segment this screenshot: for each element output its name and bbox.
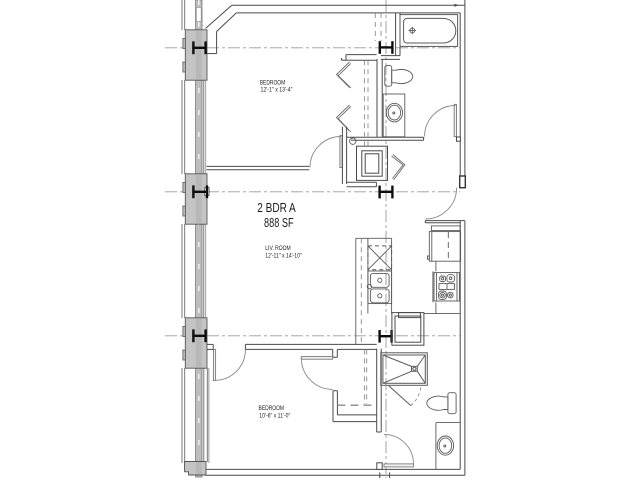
svg-text:12'-11" x 14'-10": 12'-11" x 14'-10"	[265, 252, 302, 259]
svg-text:2 BDR A: 2 BDR A	[257, 201, 296, 215]
svg-text:BEDROOM: BEDROOM	[260, 79, 286, 86]
svg-text:LIV. ROOM: LIV. ROOM	[265, 245, 291, 252]
svg-text:10'-6" x 11'-0": 10'-6" x 11'-0"	[259, 413, 290, 420]
svg-text:12'-1" x 13'-4": 12'-1" x 13'-4"	[261, 87, 293, 94]
svg-text:BEDROOM: BEDROOM	[259, 405, 285, 412]
svg-text:888 SF: 888 SF	[264, 216, 294, 230]
